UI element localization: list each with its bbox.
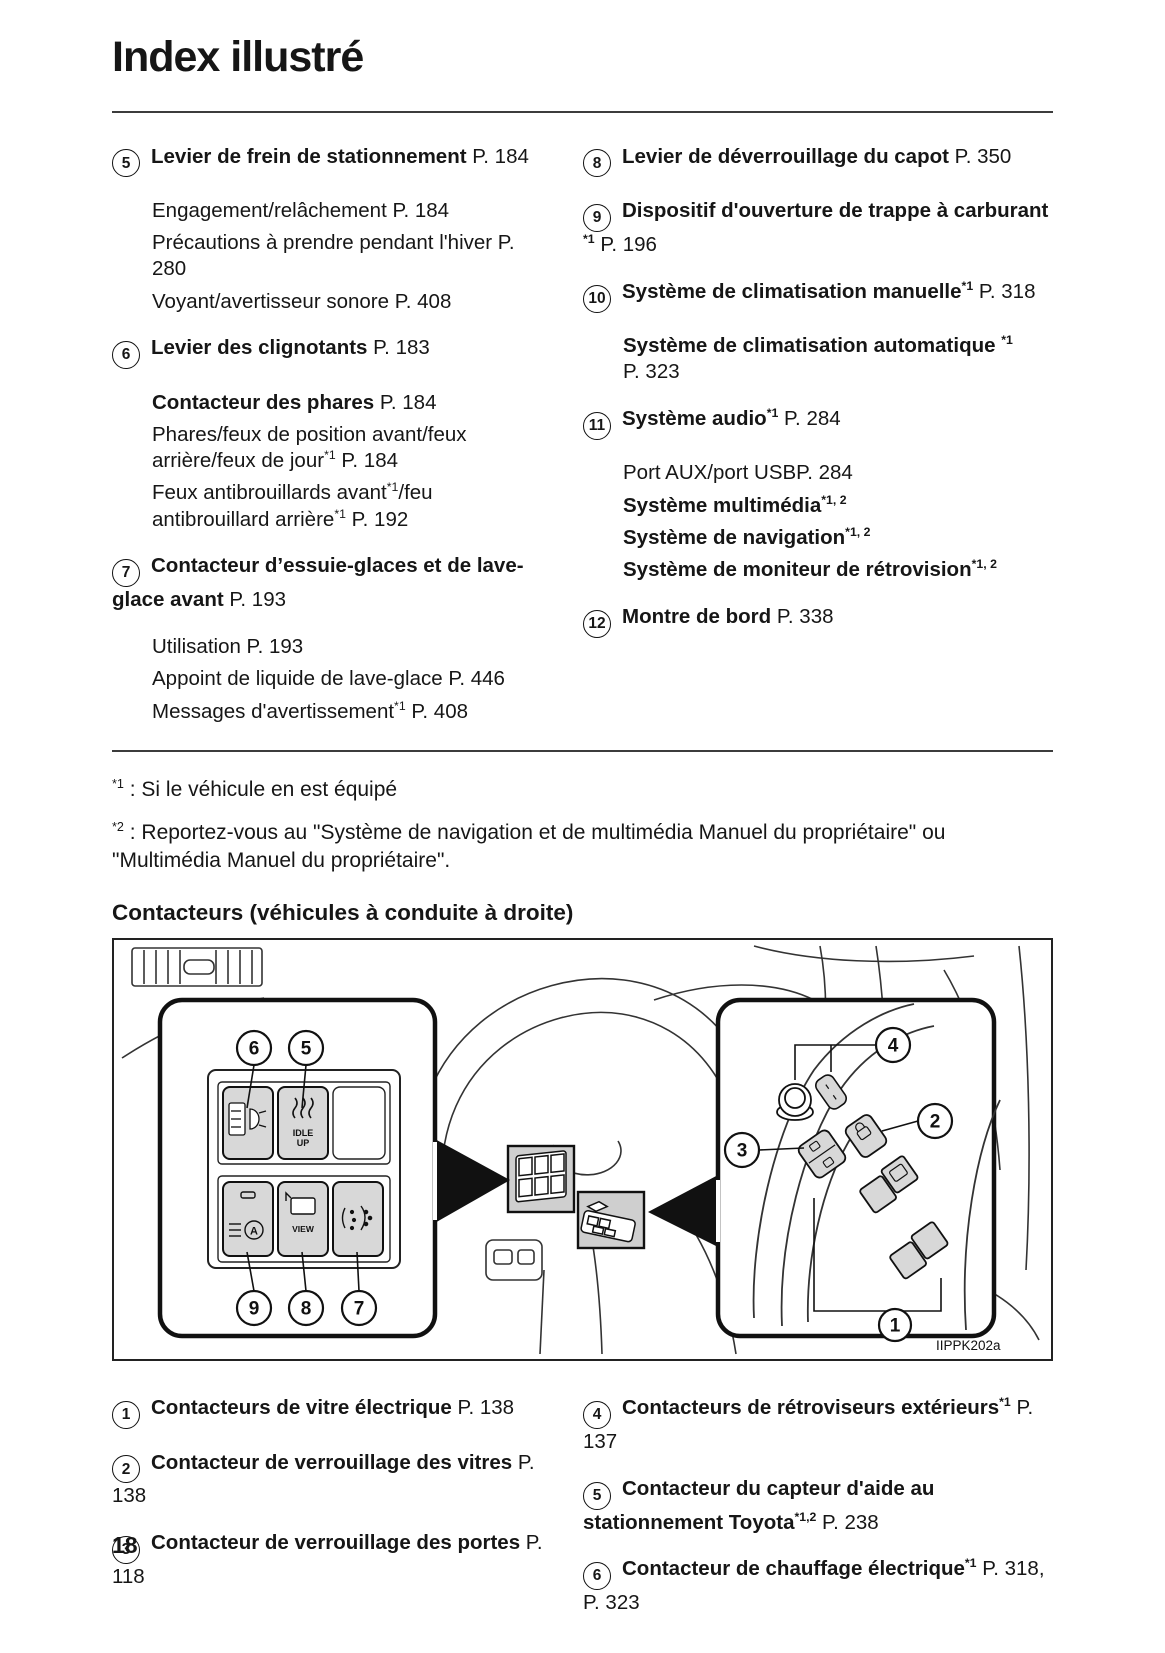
item-head: 2Contacteur de verrouillage des vitres P… bbox=[112, 1450, 561, 1510]
item-number-badge: 10 bbox=[583, 285, 611, 313]
item-subline: Système de climatisation automatique *1 … bbox=[623, 333, 1053, 385]
item-head: 10Système de climatisation manuelle*1 P.… bbox=[583, 279, 1053, 313]
index-item-6: 6Levier des clignotants P. 183 Contacteu… bbox=[112, 335, 561, 533]
index-item-b1: 1Contacteurs de vitre électrique P. 138 bbox=[112, 1395, 561, 1429]
footnote-1-text: : Si le véhicule en est équipé bbox=[124, 778, 397, 801]
mirror-adjust-knob bbox=[777, 1084, 813, 1120]
item-text: Contacteur d’essuie-glaces et de lave-gl… bbox=[112, 554, 524, 611]
index-item-5: 5Levier de frein de stationnement P. 184… bbox=[112, 144, 561, 315]
callout-6: 6 bbox=[237, 1031, 271, 1065]
item-head: 8Levier de déverrouillage du capot P. 35… bbox=[583, 144, 1053, 178]
item-subline: Port AUX/port USBP. 284 bbox=[623, 460, 1053, 486]
dashboard-illustration: IDLE UP A bbox=[114, 940, 1051, 1359]
in-situ-switch-panel bbox=[486, 1240, 542, 1280]
footnote-2-text: : Reportez-vous au "Système de navigatio… bbox=[112, 821, 945, 872]
manual-page: Index illustré 5Levier de frein de stati… bbox=[112, 0, 1053, 1637]
item-subline: Appoint de liquide de lave-glace P. 446 bbox=[152, 666, 561, 692]
page-title: Index illustré bbox=[112, 36, 1053, 79]
svg-text:9: 9 bbox=[249, 1298, 260, 1319]
item-number-badge: 2 bbox=[112, 1455, 140, 1483]
item-head: 5Contacteur du capteur d'aide au station… bbox=[583, 1476, 1053, 1536]
auto-headlight-switch: A bbox=[223, 1182, 273, 1256]
left-callout-box: IDLE UP A bbox=[160, 1000, 510, 1336]
item-text: Contacteur de verrouillage des portes P.… bbox=[112, 1531, 543, 1588]
item-head: 6Levier des clignotants P. 183 bbox=[112, 335, 561, 369]
callout-4: 4 bbox=[876, 1028, 910, 1062]
figure-code: IIPPK202a bbox=[936, 1338, 1001, 1353]
item-head: 12Montre de bord P. 338 bbox=[583, 604, 1053, 638]
svg-text:7: 7 bbox=[354, 1298, 365, 1319]
item-number-badge: 7 bbox=[112, 559, 140, 587]
svg-text:3: 3 bbox=[737, 1140, 748, 1161]
item-subline: Contacteur des phares P. 184 bbox=[152, 390, 561, 416]
index-item-8: 8Levier de déverrouillage du capot P. 35… bbox=[583, 144, 1053, 178]
item-text: Contacteur de verrouillage des vitres P.… bbox=[112, 1451, 535, 1508]
item-head: 6Contacteur de chauffage électrique*1 P.… bbox=[583, 1556, 1053, 1616]
dashboard-figure: IDLE UP A bbox=[112, 938, 1053, 1361]
item-head: 11Système audio*1 P. 284 bbox=[583, 406, 1053, 440]
svg-text:2: 2 bbox=[930, 1111, 941, 1132]
callout-3: 3 bbox=[725, 1133, 759, 1167]
item-number-badge: 9 bbox=[583, 204, 611, 232]
index-bottom-section: 1Contacteurs de vitre électrique P. 138 … bbox=[112, 1375, 1053, 1637]
item-number-badge: 6 bbox=[112, 341, 140, 369]
callout-2: 2 bbox=[918, 1104, 952, 1138]
item-subline: Messages d'avertissement*1 P. 408 bbox=[152, 699, 561, 725]
item-number-badge: 11 bbox=[583, 412, 611, 440]
item-subline: Voyant/avertisseur sonore P. 408 bbox=[152, 289, 561, 315]
item-number-badge: 6 bbox=[583, 1562, 611, 1590]
idle-up-label-line2: UP bbox=[297, 1138, 310, 1148]
footnote-1-marker: *1 bbox=[112, 777, 124, 791]
item-text: Contacteur du capteur d'aide au stationn… bbox=[583, 1477, 934, 1534]
item-number-badge: 5 bbox=[583, 1482, 611, 1510]
index-top-section: 5Levier de frein de stationnement P. 184… bbox=[112, 123, 1053, 734]
item-number-badge: 1 bbox=[112, 1401, 140, 1429]
item-head: 1Contacteurs de vitre électrique P. 138 bbox=[112, 1395, 561, 1429]
index-item-11: 11Système audio*1 P. 284 Port AUX/port U… bbox=[583, 406, 1053, 583]
item-subline: Système multimédia*1, 2 bbox=[623, 493, 1053, 519]
svg-text:1: 1 bbox=[890, 1315, 901, 1336]
item-head: 9Dispositif d'ouverture de trappe à carb… bbox=[583, 198, 1053, 258]
section-heading: Contacteurs (véhicules à conduite à droi… bbox=[112, 900, 1053, 926]
item-number-badge: 8 bbox=[583, 149, 611, 177]
item-text: Levier de frein de stationnement P. 184 bbox=[151, 145, 529, 168]
index-item-b5: 5Contacteur du capteur d'aide au station… bbox=[583, 1476, 1053, 1536]
item-head: 3Contacteur de verrouillage des portes P… bbox=[112, 1530, 561, 1590]
index-item-12: 12Montre de bord P. 338 bbox=[583, 604, 1053, 638]
item-subline: Engagement/relâchement P. 184 bbox=[152, 198, 561, 224]
left-callout-pointer bbox=[433, 1138, 510, 1224]
footnote-1: *1 : Si le véhicule en est équipé bbox=[112, 776, 1053, 804]
right-callout-box: 4 2 3 1 bbox=[648, 1000, 1000, 1341]
callout-7: 7 bbox=[342, 1291, 376, 1325]
divider-top bbox=[112, 111, 1053, 113]
index-bottom-right-column: 4Contacteurs de rétroviseurs extérieurs*… bbox=[583, 1375, 1053, 1637]
item-text: Contacteur de chauffage électrique*1 P. … bbox=[583, 1557, 1045, 1614]
svg-text:6: 6 bbox=[249, 1038, 260, 1059]
inset-switch-panel bbox=[508, 1146, 574, 1212]
view-camera-switch: VIEW bbox=[278, 1182, 328, 1256]
index-top-left-column: 5Levier de frein de stationnement P. 184… bbox=[112, 123, 583, 734]
item-head: 7Contacteur d’essuie-glaces et de lave-g… bbox=[112, 553, 561, 613]
item-head: 4Contacteurs de rétroviseurs extérieurs*… bbox=[583, 1395, 1053, 1455]
item-text: Levier des clignotants P. 183 bbox=[151, 336, 430, 359]
item-text: Système de climatisation manuelle*1 P. 3… bbox=[622, 280, 1035, 303]
index-bottom-left-column: 1Contacteurs de vitre électrique P. 138 … bbox=[112, 1375, 583, 1637]
index-item-b4: 4Contacteurs de rétroviseurs extérieurs*… bbox=[583, 1395, 1053, 1455]
item-text: Montre de bord P. 338 bbox=[622, 605, 834, 628]
inset-door-panel bbox=[578, 1192, 644, 1248]
item-text: Contacteurs de vitre électrique P. 138 bbox=[151, 1396, 514, 1419]
item-subline: Phares/feux de position avant/feux arriè… bbox=[152, 422, 561, 474]
item-number-badge: 5 bbox=[112, 149, 140, 177]
index-top-right-column: 8Levier de déverrouillage du capot P. 35… bbox=[583, 123, 1053, 734]
item-text: Dispositif d'ouverture de trappe à carbu… bbox=[583, 199, 1048, 256]
index-item-b6: 6Contacteur de chauffage électrique*1 P.… bbox=[583, 1556, 1053, 1616]
item-number-badge: 4 bbox=[583, 1401, 611, 1429]
callout-1: 1 bbox=[879, 1309, 911, 1341]
item-subline: Précautions à prendre pendant l'hiver P.… bbox=[152, 230, 561, 282]
index-item-b2: 2Contacteur de verrouillage des vitres P… bbox=[112, 1450, 561, 1510]
index-item-7: 7Contacteur d’essuie-glaces et de lave-g… bbox=[112, 553, 561, 724]
item-subline: Feux antibrouillards avant*1/feu antibro… bbox=[152, 480, 561, 532]
item-subline: Utilisation P. 193 bbox=[152, 634, 561, 660]
blank-switch-slot bbox=[333, 1087, 385, 1159]
washer-spray-switch bbox=[333, 1182, 383, 1256]
index-item-b3: 3Contacteur de verrouillage des portes P… bbox=[112, 1530, 561, 1590]
item-number-badge: 12 bbox=[583, 610, 611, 638]
auto-letter: A bbox=[250, 1225, 258, 1237]
item-text: Système audio*1 P. 284 bbox=[622, 407, 841, 430]
svg-text:5: 5 bbox=[301, 1038, 312, 1059]
svg-text:8: 8 bbox=[301, 1298, 312, 1319]
callout-9: 9 bbox=[237, 1291, 271, 1325]
callout-5: 5 bbox=[289, 1031, 323, 1065]
view-label: VIEW bbox=[292, 1224, 315, 1234]
callout-8: 8 bbox=[289, 1291, 323, 1325]
right-callout-pointer bbox=[648, 1174, 720, 1248]
item-subline: Système de navigation*1, 2 bbox=[623, 525, 1053, 551]
page-number: 18 bbox=[112, 1532, 138, 1559]
item-head: 5Levier de frein de stationnement P. 184 bbox=[112, 144, 561, 178]
item-subline: Système de moniteur de rétrovision*1, 2 bbox=[623, 557, 1053, 583]
footnote-2-marker: *2 bbox=[112, 820, 124, 834]
index-item-10: 10Système de climatisation manuelle*1 P.… bbox=[583, 279, 1053, 386]
item-text: Contacteurs de rétroviseurs extérieurs*1… bbox=[583, 1396, 1033, 1453]
item-text: Levier de déverrouillage du capot P. 350 bbox=[622, 145, 1011, 168]
divider-index-bottom bbox=[112, 750, 1053, 752]
footnote-2: *2 : Reportez-vous au "Système de naviga… bbox=[112, 819, 1053, 875]
idle-up-label-line1: IDLE bbox=[293, 1128, 314, 1138]
index-item-9: 9Dispositif d'ouverture de trappe à carb… bbox=[583, 198, 1053, 258]
svg-text:4: 4 bbox=[888, 1035, 899, 1056]
